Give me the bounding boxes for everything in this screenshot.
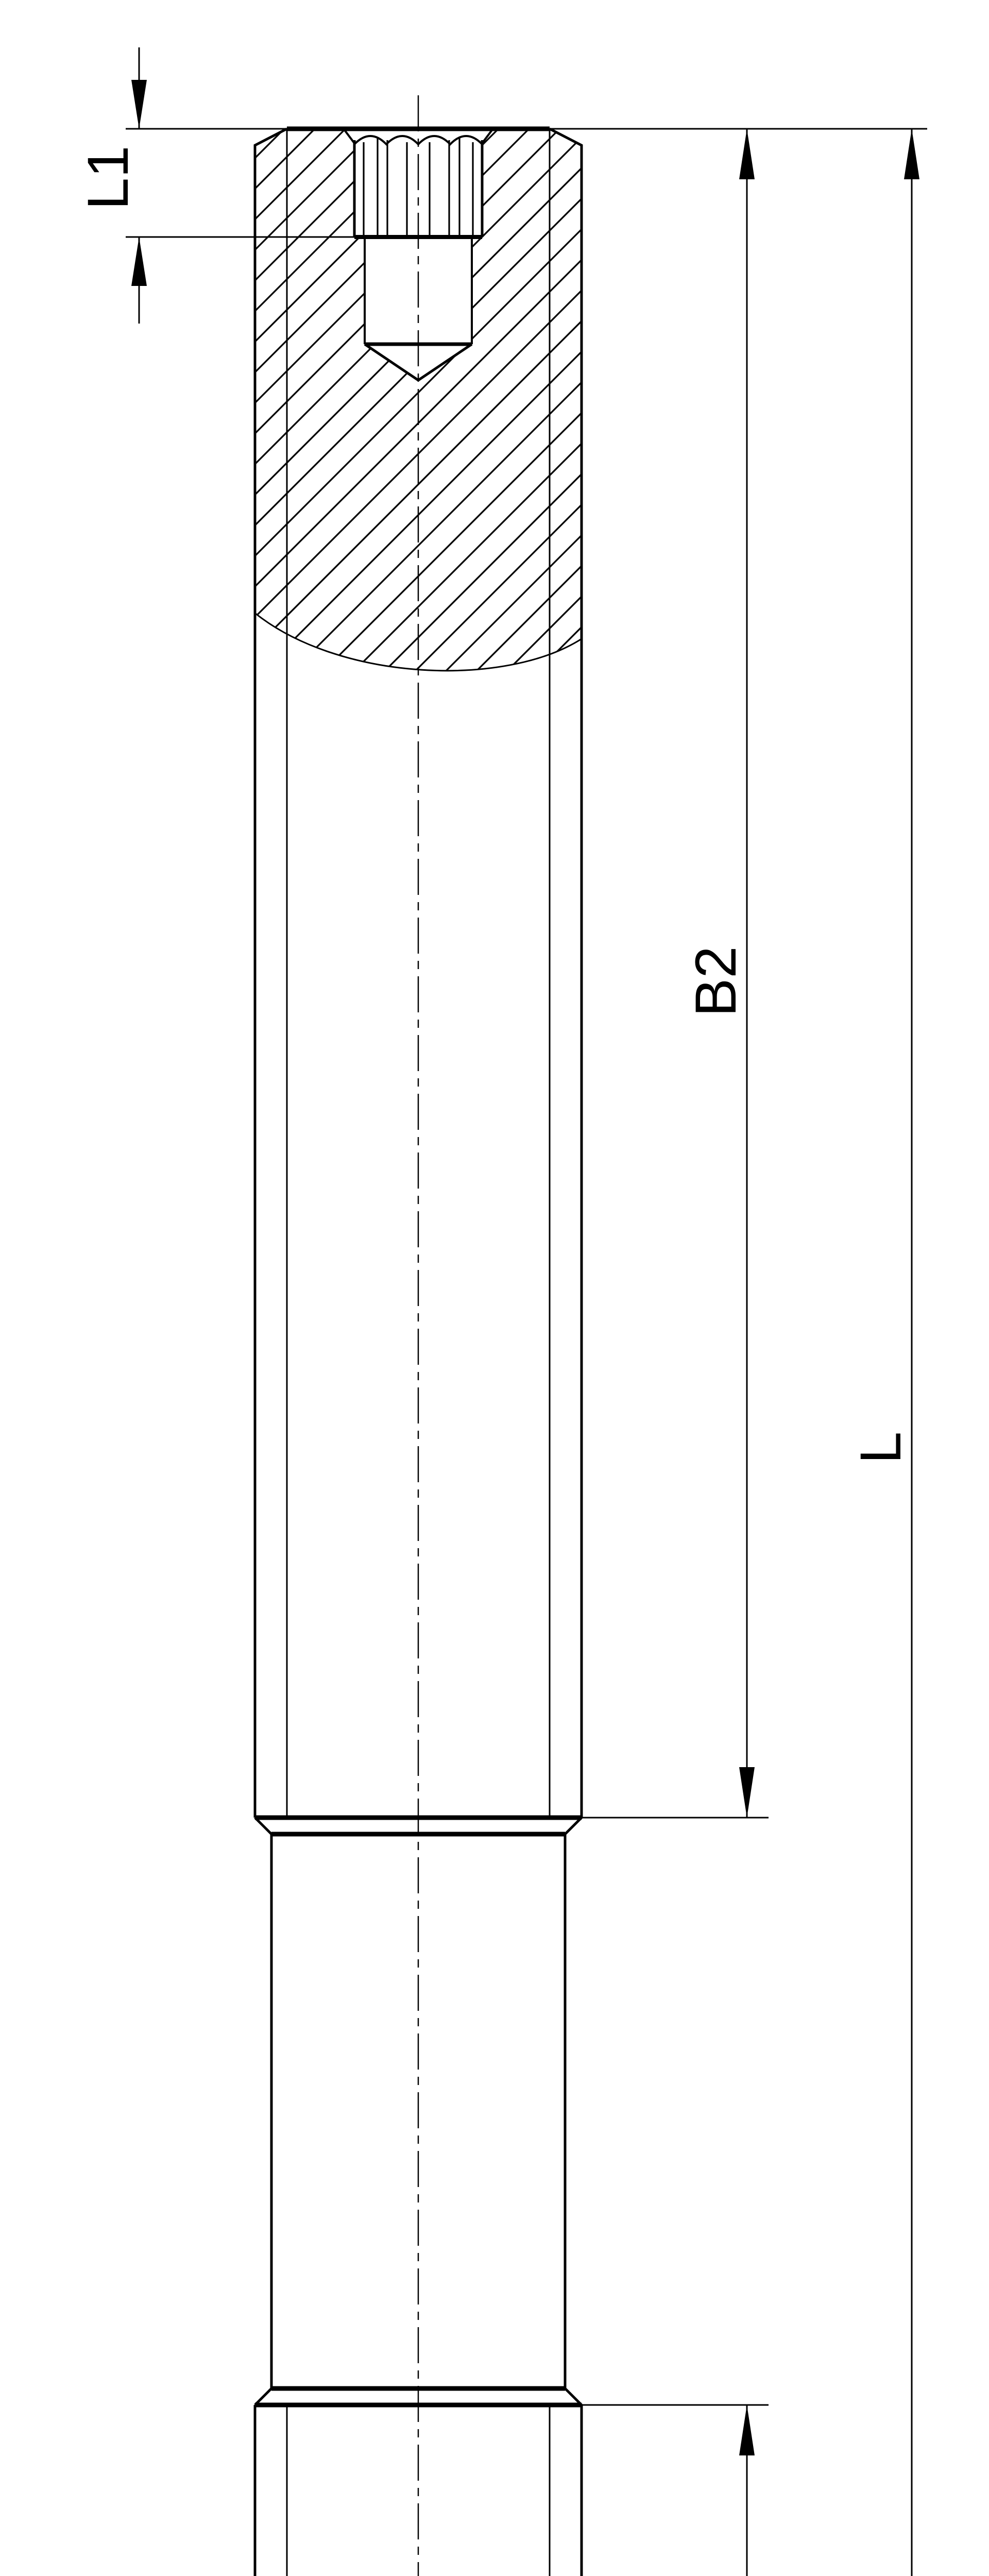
drawing-page: L1 B2 L B1 D [0, 0, 989, 2576]
technical-drawing: L1 B2 L B1 D [0, 0, 989, 2576]
lower-chamfer-left [255, 2388, 271, 2405]
shoulder-chamfer-right [565, 1818, 582, 1834]
l1-label: L1 [76, 146, 140, 210]
l-label: L [848, 1432, 913, 1464]
front-view [255, 95, 582, 2576]
b2-arrow-bottom [739, 1767, 755, 1818]
dimension-b2: B2 [684, 129, 755, 1818]
dimension-b1: B1 [684, 2405, 755, 2576]
b2-arrow-top [739, 129, 755, 179]
b1-label: B1 [684, 2574, 748, 2576]
b1-arrow-top [739, 2405, 755, 2455]
l1-arrow-top [131, 80, 147, 129]
l1-arrow-bottom [131, 237, 147, 286]
l-arrow-top [904, 129, 919, 179]
shoulder-chamfer-left [255, 1818, 271, 1834]
lower-chamfer-right [565, 2388, 582, 2405]
b2-label: B2 [684, 946, 748, 1017]
dimension-l: L [848, 129, 919, 2576]
dimension-l1: L1 [76, 47, 147, 324]
